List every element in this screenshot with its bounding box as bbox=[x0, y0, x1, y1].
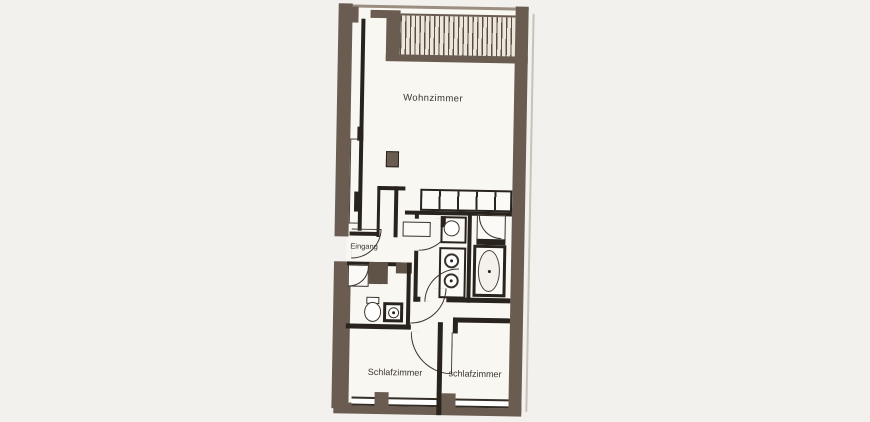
balcony-decking bbox=[400, 13, 516, 58]
wall-stub-west-b bbox=[354, 192, 360, 212]
wall-stub-top-left bbox=[346, 6, 358, 22]
column bbox=[386, 151, 399, 167]
bathtub-basin bbox=[478, 250, 501, 292]
hall-wall-top bbox=[377, 186, 405, 191]
wall-pier-bottom-a bbox=[374, 392, 388, 405]
bedroom-right-wall-top bbox=[458, 317, 510, 323]
room-label-bedroom-left: Schlafzimmer bbox=[362, 367, 428, 378]
room-label-entrance: Eingang bbox=[350, 241, 394, 251]
bedroom-right-wall-stub bbox=[453, 317, 458, 333]
floor-plan: Wohnzimmer Eingang Schlafzimmer schlafzi… bbox=[329, 0, 537, 422]
wall-pier-bottom-b bbox=[441, 393, 455, 406]
vanity-basin-top bbox=[444, 253, 459, 268]
kitchen-counter bbox=[420, 189, 512, 213]
window-bedroom-left-b bbox=[388, 397, 439, 407]
room-label-bedroom-right: schlafzimmer bbox=[442, 368, 508, 379]
bathtub bbox=[472, 245, 506, 298]
room-label-living: Wohnzimmer bbox=[393, 92, 473, 104]
wall-stub-west-a bbox=[357, 127, 363, 141]
wc-pier-a bbox=[369, 262, 388, 284]
window-bedroom-right bbox=[455, 398, 508, 408]
window-bedroom-left-a bbox=[351, 397, 374, 406]
scanned-floor-plan-page: { "rooms": { "living": { "label": "Wohnz… bbox=[0, 0, 870, 420]
